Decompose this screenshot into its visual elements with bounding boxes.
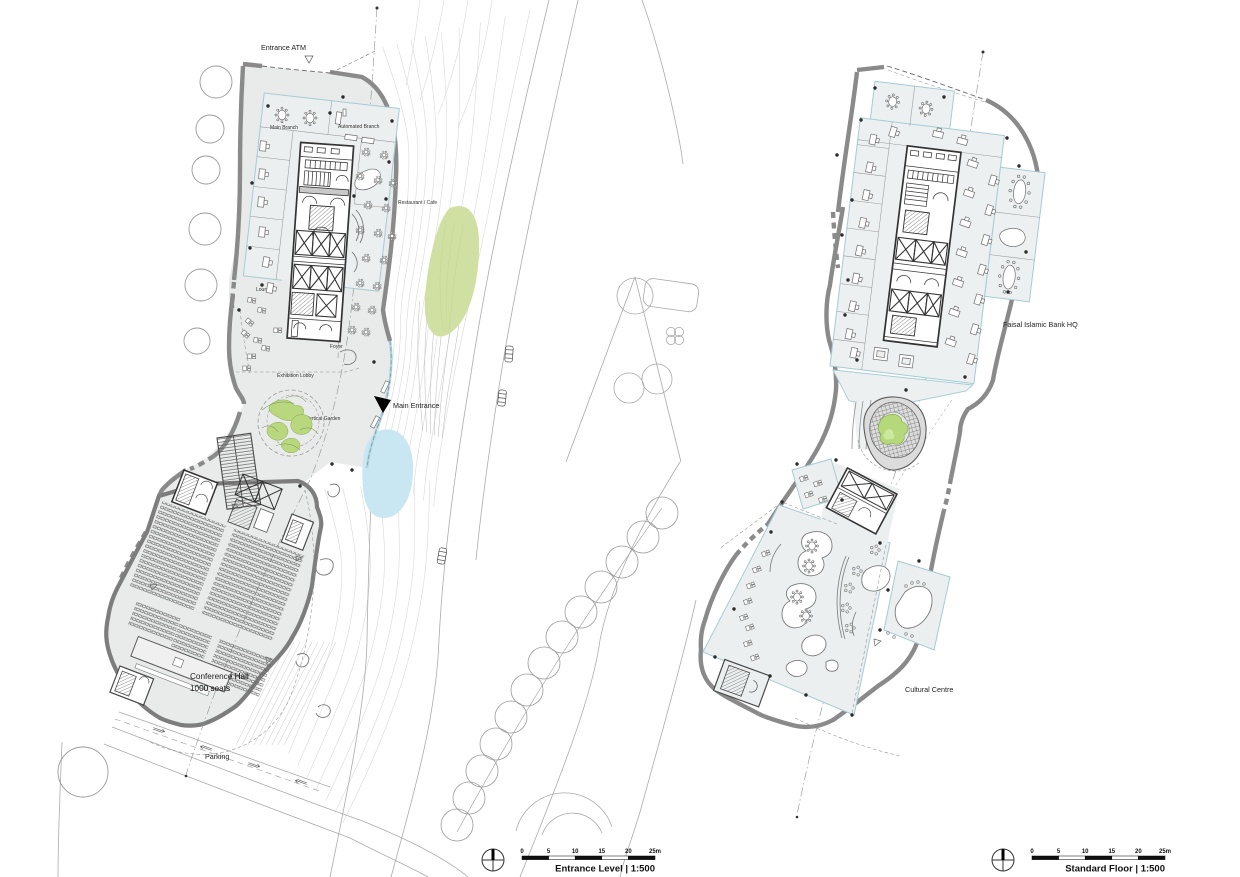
svg-text:20: 20 [625,849,632,855]
svg-text:Entrance ATM: Entrance ATM [261,43,306,52]
svg-text:Foyer: Foyer [330,344,343,350]
svg-text:20: 20 [1135,849,1142,855]
svg-text:25m: 25m [649,849,661,855]
svg-text:Conference Hall: Conference Hall [190,672,249,681]
svg-text:Main Entrance: Main Entrance [393,401,439,410]
svg-text:Cultural Centre: Cultural Centre [905,685,953,694]
svg-text:10: 10 [1082,849,1089,855]
svg-text:Exhibition Lobby: Exhibition Lobby [277,373,314,379]
svg-text:1000 seats: 1000 seats [190,684,230,693]
svg-text:Faisal Islamic Bank HQ: Faisal Islamic Bank HQ [1003,320,1078,329]
svg-text:15: 15 [598,849,605,855]
svg-text:Main Branch: Main Branch [270,125,298,131]
svg-text:Restaurant / Cafe: Restaurant / Cafe [398,200,437,206]
svg-text:Automated Branch: Automated Branch [338,124,380,130]
svg-text:15: 15 [1108,849,1115,855]
svg-text:Standard Floor | 1:500: Standard Floor | 1:500 [1065,864,1165,875]
svg-text:Parking: Parking [205,752,229,761]
svg-text:Entrance Level | 1:500: Entrance Level | 1:500 [555,864,655,875]
svg-text:10: 10 [572,849,579,855]
svg-text:25m: 25m [1159,849,1171,855]
